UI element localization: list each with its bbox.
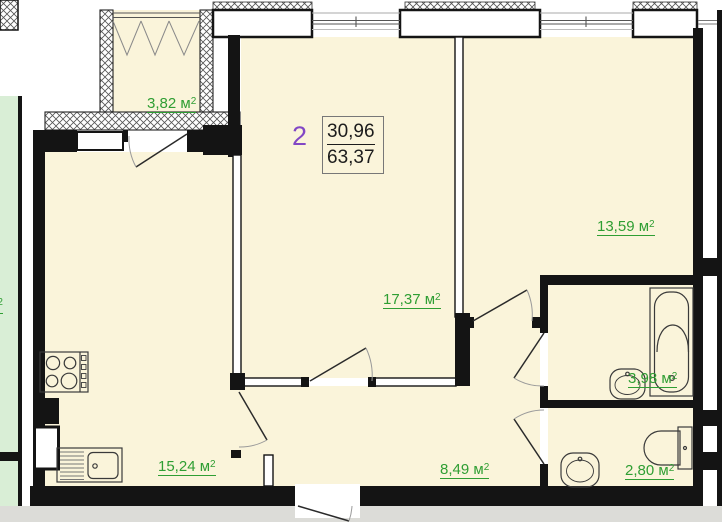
room-area-label-wc: 2,80 м2 [625,462,674,480]
room-area-label-bedroom: 13,59 м2 [597,218,655,236]
neighbor-area-label-partial-1: м2 [0,296,3,314]
room-area-label-balcony: 3,82 м2 [147,95,196,113]
apartment-number: 2 [292,123,307,150]
area-summary-box: 30,96 63,37 [322,116,384,174]
room-area-label-living-room: 17,37 м2 [383,291,441,309]
room-floors [45,10,693,486]
floor-plan-drawing [0,0,722,522]
room-area-label-bathroom: 3,98 м2 [628,370,677,388]
floor-plan: 3,82 м2 15,24 м2 17,37 м2 13,59 м2 8,49 … [0,0,722,522]
ventilation-shaft-icon [33,398,59,469]
total-area-value: 63,37 [327,145,379,170]
room-area-label-hallway: 8,49 м2 [440,461,489,479]
living-area-value: 30,96 [327,119,375,145]
room-area-label-kitchen: 15,24 м2 [158,458,216,476]
